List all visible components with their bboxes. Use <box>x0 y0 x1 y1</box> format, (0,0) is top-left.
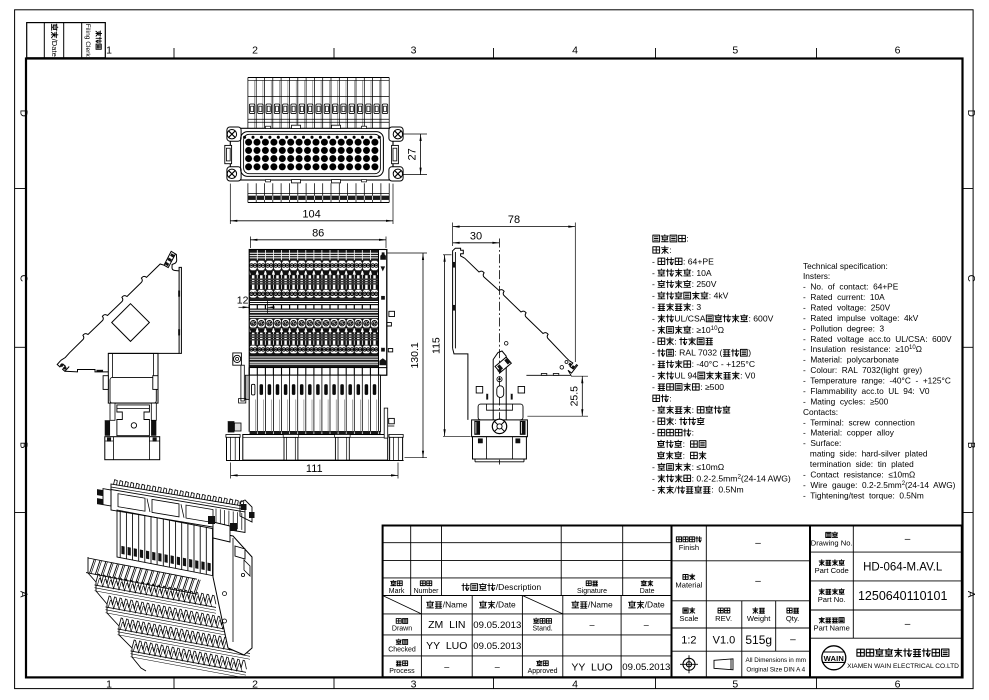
svg-text:- Material: copper alloy: - Material: copper alloy <box>803 428 895 438</box>
svg-text:-: - <box>652 473 657 483</box>
svg-text:–: – <box>790 635 796 646</box>
svg-text:Drawn: Drawn <box>392 626 412 633</box>
svg-text:Material: Material <box>675 580 702 589</box>
svg-text:-: - <box>652 416 657 426</box>
svg-text::: : <box>669 393 671 403</box>
svg-text:: 10A: : 10A <box>692 268 712 278</box>
svg-text:86: 86 <box>312 227 324 239</box>
svg-text:1250640110101: 1250640110101 <box>858 589 947 603</box>
svg-text:- Insulation resistance: ≥1: - Insulation resistance: ≥1010Ω <box>803 344 922 354</box>
svg-text:- Flammability acc.to UL 9: - Flammability acc.to UL 94: V0 <box>803 386 930 396</box>
svg-text:C: C <box>18 275 29 282</box>
svg-text:D: D <box>18 110 29 117</box>
svg-text:–: – <box>644 619 649 629</box>
svg-text:–: – <box>905 534 911 545</box>
svg-text:515g: 515g <box>745 633 772 647</box>
svg-text:27: 27 <box>407 148 419 160</box>
svg-text:6: 6 <box>895 45 901 57</box>
svg-text:-: - <box>652 359 657 369</box>
svg-text:Number: Number <box>414 588 440 595</box>
svg-text:: ≤10mΩ: : ≤10mΩ <box>692 462 725 472</box>
svg-text:UL/CSA: UL/CSA <box>674 313 705 323</box>
svg-text:-: - <box>652 325 657 335</box>
svg-text:2: 2 <box>252 679 258 691</box>
svg-text:Part No.: Part No. <box>818 595 846 604</box>
svg-text:XIAMEN WAIN ELECTRICAL CO.LTD: XIAMEN WAIN ELECTRICAL CO.LTD <box>847 663 959 670</box>
svg-text:- Rated voltage: 250V: - Rated voltage: 250V <box>803 303 891 313</box>
svg-text:C: C <box>965 275 976 282</box>
svg-text:All Dimensions in mm: All Dimensions in mm <box>746 657 807 664</box>
svg-text:-: - <box>652 268 657 278</box>
svg-text:: 3: : 3 <box>692 302 702 312</box>
svg-text:25.5: 25.5 <box>568 386 580 407</box>
svg-text:Drawing No.: Drawing No. <box>811 538 853 547</box>
svg-text:A: A <box>965 591 976 598</box>
svg-text:: 4kV: : 4kV <box>709 291 729 301</box>
svg-text:/Date: /Date <box>50 39 59 57</box>
svg-text:-: - <box>652 428 657 438</box>
svg-text:≥1010Ω: ≥1010Ω <box>694 325 725 335</box>
svg-text:Signature: Signature <box>577 588 607 595</box>
svg-text::: : <box>674 336 679 346</box>
svg-text:1: 1 <box>106 679 112 691</box>
svg-text:- Material: polycarbonate: - Material: polycarbonate <box>803 355 899 365</box>
svg-text:- Rated current: 10A: - Rated current: 10A <box>803 292 885 302</box>
svg-text:-: - <box>652 291 657 301</box>
svg-text:–: – <box>755 576 761 587</box>
svg-text:: ≥500: : ≥500 <box>700 382 724 392</box>
svg-text:: 600V: : 600V <box>749 313 774 323</box>
svg-text:Checked: Checked <box>388 647 416 654</box>
svg-text:WAIN: WAIN <box>824 654 844 663</box>
svg-text:- Mating cycles: ≥500: - Mating cycles: ≥500 <box>803 396 889 406</box>
svg-text:- Contact resistance: ≤10mΩ: - Contact resistance: ≤10mΩ <box>803 469 915 479</box>
svg-text:09.05.2013: 09.05.2013 <box>622 662 670 673</box>
svg-text:Part Name: Part Name <box>814 624 850 633</box>
svg-text:09.05.2013: 09.05.2013 <box>473 620 521 631</box>
svg-text:1:2: 1:2 <box>681 635 696 647</box>
svg-text:130.1: 130.1 <box>409 342 421 368</box>
svg-text:: 250V: : 250V <box>692 279 717 289</box>
svg-text:/Date: /Date <box>645 600 665 610</box>
svg-text:/Description: /Description <box>496 582 542 592</box>
svg-text:- Pollution degree: 3: - Pollution degree: 3 <box>803 323 885 333</box>
svg-text:4: 4 <box>572 679 578 691</box>
svg-text:A: A <box>18 591 29 598</box>
svg-text:-: - <box>652 336 657 346</box>
svg-text:Stand.: Stand. <box>533 626 553 633</box>
svg-text::: : <box>674 416 679 426</box>
svg-text:Technical specification:: Technical specification: <box>803 261 888 271</box>
svg-text:-: - <box>652 279 657 289</box>
svg-text:- Rated impulse voltage: 4: - Rated impulse voltage: 4kV <box>803 313 919 323</box>
svg-text:- Terminal: screw connectio: - Terminal: screw connection <box>803 417 915 427</box>
svg-text:–: – <box>905 619 911 630</box>
svg-text:Date: Date <box>640 588 655 595</box>
svg-text::: : <box>686 234 688 244</box>
svg-text:- Colour: RAL 7032(light g: - Colour: RAL 7032(light grey) <box>803 365 922 375</box>
svg-text:YY LUO: YY LUO <box>571 661 612 673</box>
svg-text:3: 3 <box>411 679 417 691</box>
svg-text:5: 5 <box>732 45 738 57</box>
svg-text:- Surface:: - Surface: <box>803 438 841 448</box>
svg-text:Original Size DIN A 4: Original Size DIN A 4 <box>746 667 805 674</box>
svg-text:78: 78 <box>508 214 520 226</box>
svg-text:- Tightening/test torque: 0: - Tightening/test torque: 0.5Nm <box>803 490 924 500</box>
svg-text:09.05.2013: 09.05.2013 <box>473 641 521 652</box>
svg-text:-: - <box>652 485 657 495</box>
svg-text:111: 111 <box>306 463 323 475</box>
svg-text:mating side: hard-silver pl: mating side: hard-silver plated <box>803 449 928 459</box>
svg-text:–: – <box>495 662 500 672</box>
svg-text:/Name: /Name <box>588 600 613 610</box>
svg-text:-: - <box>652 371 657 381</box>
svg-text:/Name: /Name <box>443 600 468 610</box>
svg-text:3: 3 <box>411 45 417 57</box>
svg-text:12: 12 <box>237 295 249 307</box>
svg-text:: 64+PE: : 64+PE <box>683 256 714 266</box>
svg-text:termination side: tin plate: termination side: tin plated <box>803 459 914 469</box>
svg-text:-: - <box>652 462 657 472</box>
svg-text:6: 6 <box>895 679 901 691</box>
svg-text:-: - <box>652 405 657 415</box>
svg-text:115: 115 <box>431 337 443 354</box>
svg-text:: V0: : V0 <box>740 371 756 381</box>
svg-text:–: – <box>444 662 449 672</box>
svg-text::: : <box>669 245 671 255</box>
svg-text:2: 2 <box>252 45 258 57</box>
svg-text:Mark: Mark <box>389 588 405 595</box>
svg-text:Finish: Finish <box>679 543 699 552</box>
svg-text:: RAL 7032 (: : RAL 7032 ( <box>674 348 722 358</box>
svg-text:UL 94: UL 94 <box>674 371 697 381</box>
svg-text:- Wire gauge: 0.2-2.5mm2(24: - Wire gauge: 0.2-2.5mm2(24-14 AWG) <box>803 480 956 490</box>
svg-text:HD-064-M.AV.L: HD-064-M.AV.L <box>863 562 943 574</box>
svg-text:REV.: REV. <box>715 614 732 623</box>
svg-text:Filing Clerk: Filing Clerk <box>84 24 91 58</box>
svg-text:4: 4 <box>572 45 578 57</box>
svg-text::: : <box>683 451 690 461</box>
svg-text:–: – <box>589 619 594 629</box>
svg-text:-: - <box>652 313 657 323</box>
svg-text:B: B <box>18 442 29 449</box>
svg-text:B: B <box>965 442 976 449</box>
svg-text:5: 5 <box>732 679 738 691</box>
svg-text:30: 30 <box>470 231 482 243</box>
svg-text:1: 1 <box>106 45 112 57</box>
svg-text:Scale: Scale <box>679 614 698 623</box>
svg-text:-: - <box>652 382 657 392</box>
svg-text:V1.0: V1.0 <box>713 635 736 647</box>
svg-text:104: 104 <box>302 208 320 220</box>
svg-text:: 0.5Nm: : 0.5Nm <box>711 485 743 495</box>
svg-text:Part Code: Part Code <box>815 566 849 575</box>
svg-text::: : <box>683 439 690 449</box>
svg-text::: : <box>692 428 694 438</box>
svg-text:- No. of contact: 64+PE: - No. of contact: 64+PE <box>803 282 899 292</box>
svg-text:Qty.: Qty. <box>786 614 799 623</box>
svg-text:-: - <box>652 302 657 312</box>
svg-text:ZM LIN: ZM LIN <box>428 619 465 631</box>
svg-text:): ) <box>748 348 751 358</box>
svg-text:- Rated voltage acc.to UL/: - Rated voltage acc.to UL/CSA: 600V <box>803 334 952 344</box>
svg-text:D: D <box>965 110 976 117</box>
svg-text::: : <box>692 405 697 415</box>
svg-text:/Date: /Date <box>496 600 516 610</box>
svg-text:Approved: Approved <box>528 668 558 675</box>
svg-text:YY LUO: YY LUO <box>426 640 467 652</box>
svg-text:-: - <box>652 256 657 266</box>
svg-text:–: – <box>755 538 761 549</box>
svg-text:Weight: Weight <box>747 614 771 623</box>
svg-text:Insters:: Insters: <box>803 271 830 281</box>
svg-text:- Temperature range: -40°C: - Temperature range: -40°C - +125°C <box>803 376 951 386</box>
svg-text:-: - <box>652 348 657 358</box>
svg-text:Process: Process <box>389 668 415 675</box>
svg-text:: -40°C - +125°C: : -40°C - +125°C <box>692 359 755 369</box>
svg-text:Contacts:: Contacts: <box>803 407 838 417</box>
svg-text:0.2-2.5mm2(24-14 AWG): 0.2-2.5mm2(24-14 AWG) <box>694 473 791 483</box>
